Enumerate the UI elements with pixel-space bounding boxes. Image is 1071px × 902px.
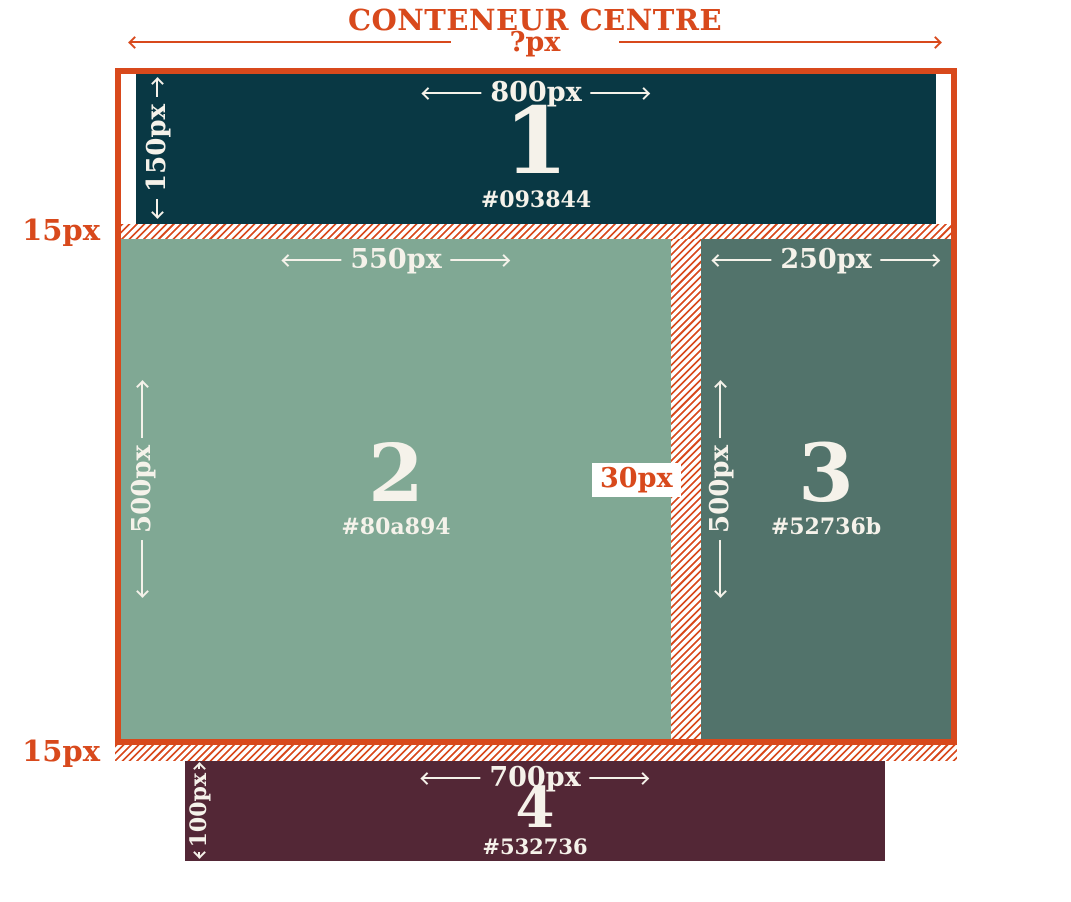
container-width-label: ?px [465, 29, 606, 56]
box-1-hex-label: #093844 [481, 189, 591, 211]
dimension-line-left-icon [130, 41, 451, 43]
dimension-line-right-icon [619, 41, 940, 43]
layout-diagram: CONTENEUR CENTRE ?px 15px 15px 800px 150… [0, 0, 1071, 902]
box-2-hex-label: #80a894 [341, 516, 450, 538]
margin-top-label: 15px [0, 215, 100, 247]
box-4-hex-label: #532736 [482, 836, 587, 857]
box-4-number: 4 [516, 786, 555, 832]
box-1-number: 1 [504, 105, 568, 179]
box-1-content: 1 #093844 [136, 74, 936, 224]
box-3: 250px 500px 3 #52736b [701, 239, 951, 739]
box-2: 550px 500px 2 #80a894 [121, 239, 671, 739]
box-3-number: 3 [798, 441, 854, 505]
margin-bottom-label: 15px [0, 736, 100, 768]
margin-bottom-hatch [115, 745, 957, 761]
container-width-dimension: ?px [130, 29, 940, 55]
gutter-label: 30px [592, 463, 681, 497]
conteneur-centre: 800px 150px 1 #093844 550px [115, 68, 957, 745]
box-3-content: 3 #52736b [701, 239, 951, 739]
gap-15px-hatch [121, 224, 951, 239]
box-4-content: 4 #532736 [185, 761, 885, 861]
box-2-content: 2 #80a894 [121, 239, 671, 739]
box-2-number: 2 [368, 441, 424, 505]
box-4: 700px 100px 4 #532736 [185, 761, 885, 861]
box-1: 800px 150px 1 #093844 [136, 74, 936, 224]
box-3-hex-label: #52736b [771, 516, 881, 538]
